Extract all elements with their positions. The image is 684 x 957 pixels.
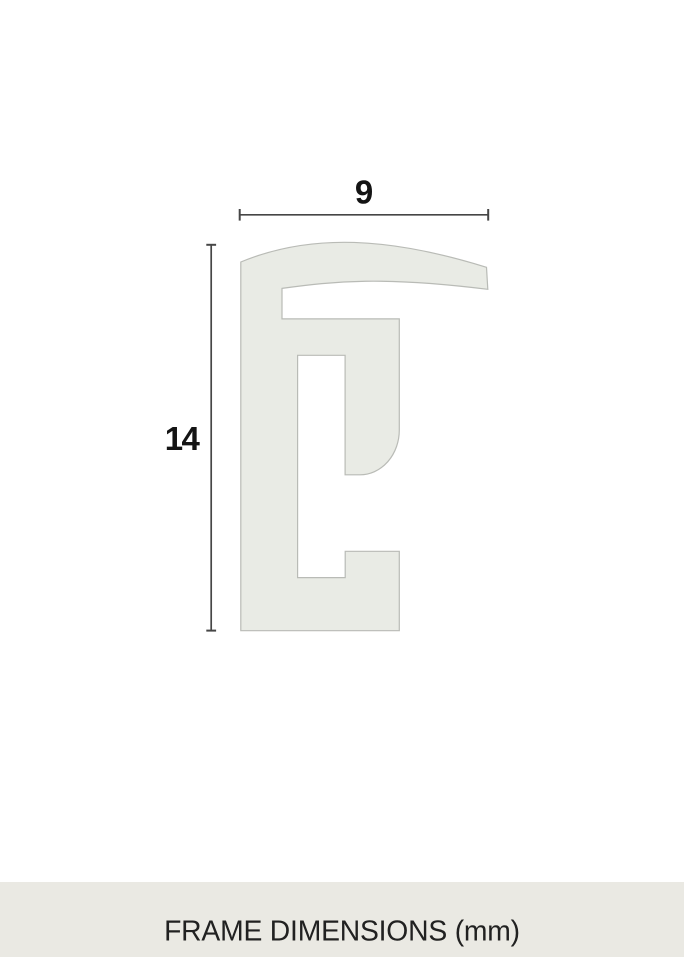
svg-text:FRAME DIMENSIONS (mm): FRAME DIMENSIONS (mm) [164, 914, 520, 946]
svg-text:9: 9 [355, 173, 373, 210]
svg-text:14: 14 [165, 420, 201, 457]
